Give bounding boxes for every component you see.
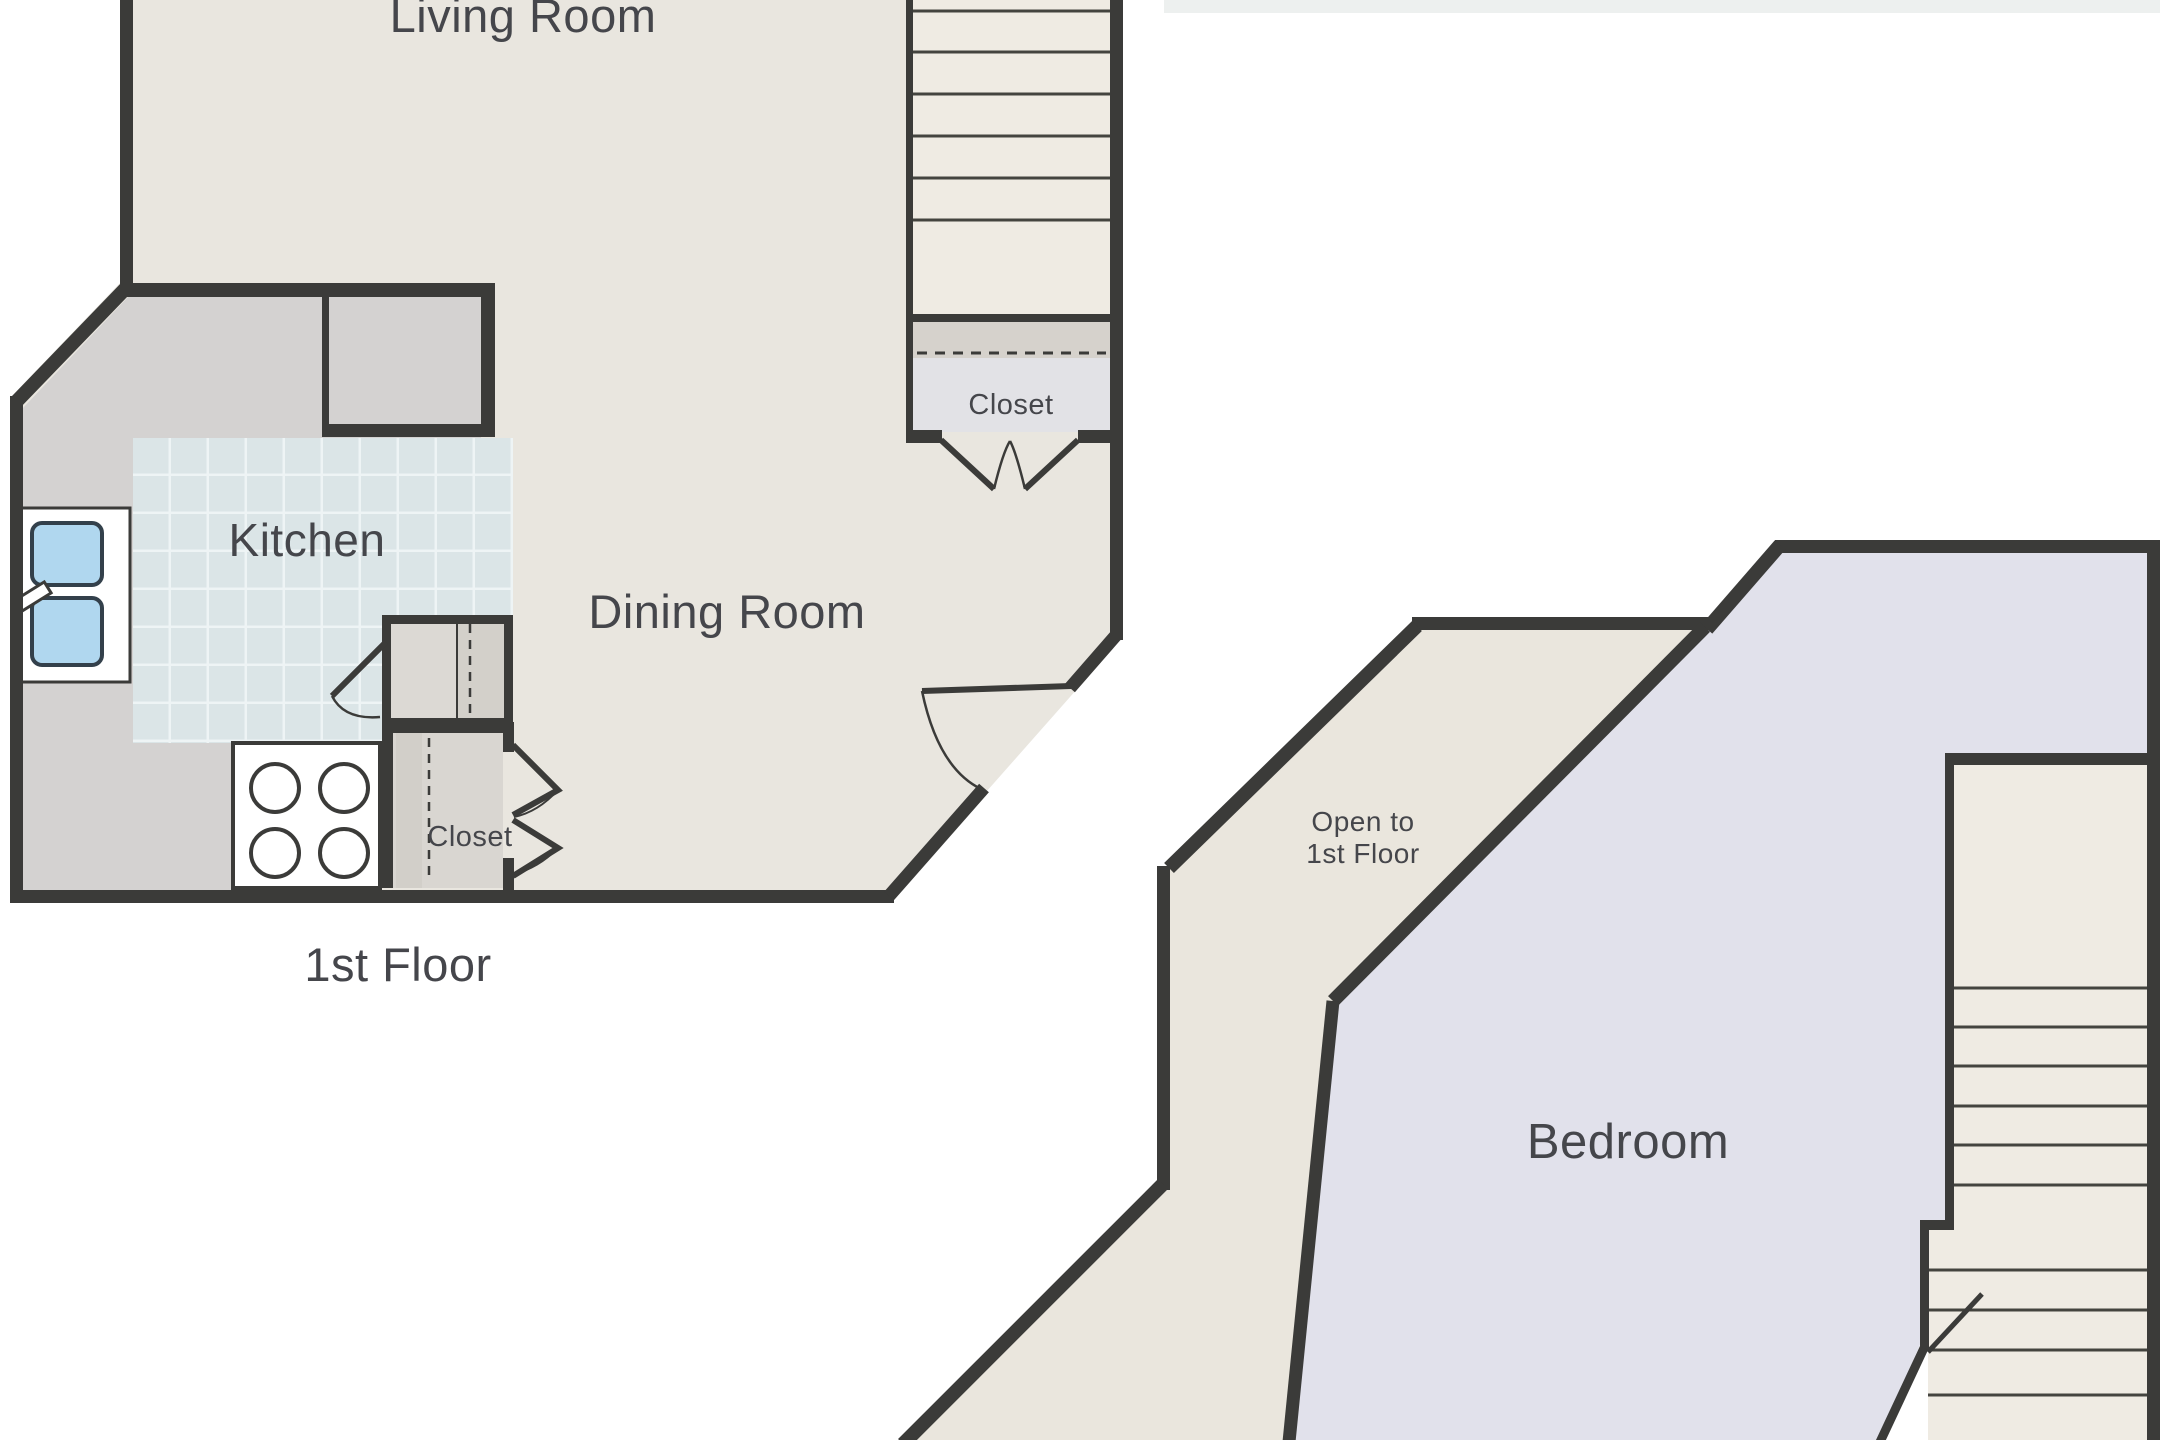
stairs-left-wall bbox=[1945, 753, 1954, 1230]
open-to-label-line2: 1st Floor bbox=[1306, 838, 1419, 869]
sink-basin-top bbox=[32, 523, 102, 585]
stairs-left-wall bbox=[906, 0, 913, 437]
first-floor-stairs: Closet bbox=[906, 0, 1123, 489]
living-room-label: Living Room bbox=[390, 0, 657, 42]
kitchen-closet-label: Closet bbox=[427, 821, 512, 853]
first-floor-plan: Closet Closet bbox=[10, 0, 1123, 991]
kitchen-closet: Closet bbox=[382, 722, 514, 890]
bedroom-label: Bedroom bbox=[1527, 1115, 1729, 1169]
kitchen-label: Kitchen bbox=[229, 514, 386, 566]
stove-burner-icon bbox=[320, 829, 368, 877]
kitchen-pantry bbox=[387, 620, 509, 723]
second-floor-plan: Open to 1st Floor Bedroom bbox=[903, 540, 2160, 1440]
stair-closet-label: Closet bbox=[968, 389, 1053, 421]
kitchen-sink bbox=[15, 508, 130, 682]
kitchen-stove bbox=[233, 743, 380, 888]
stove-burner-icon bbox=[251, 764, 299, 812]
stove-burner-icon bbox=[251, 829, 299, 877]
top-edge-artifact-strip bbox=[1164, 0, 2160, 13]
sink-basin-bottom bbox=[32, 598, 102, 665]
dining-room-label: Dining Room bbox=[588, 585, 865, 638]
floor-plan-canvas: Closet Closet bbox=[0, 0, 2160, 1440]
open-to-label-line1: Open to bbox=[1311, 806, 1414, 837]
stove-burner-icon bbox=[320, 764, 368, 812]
first-floor-caption: 1st Floor bbox=[304, 938, 491, 991]
